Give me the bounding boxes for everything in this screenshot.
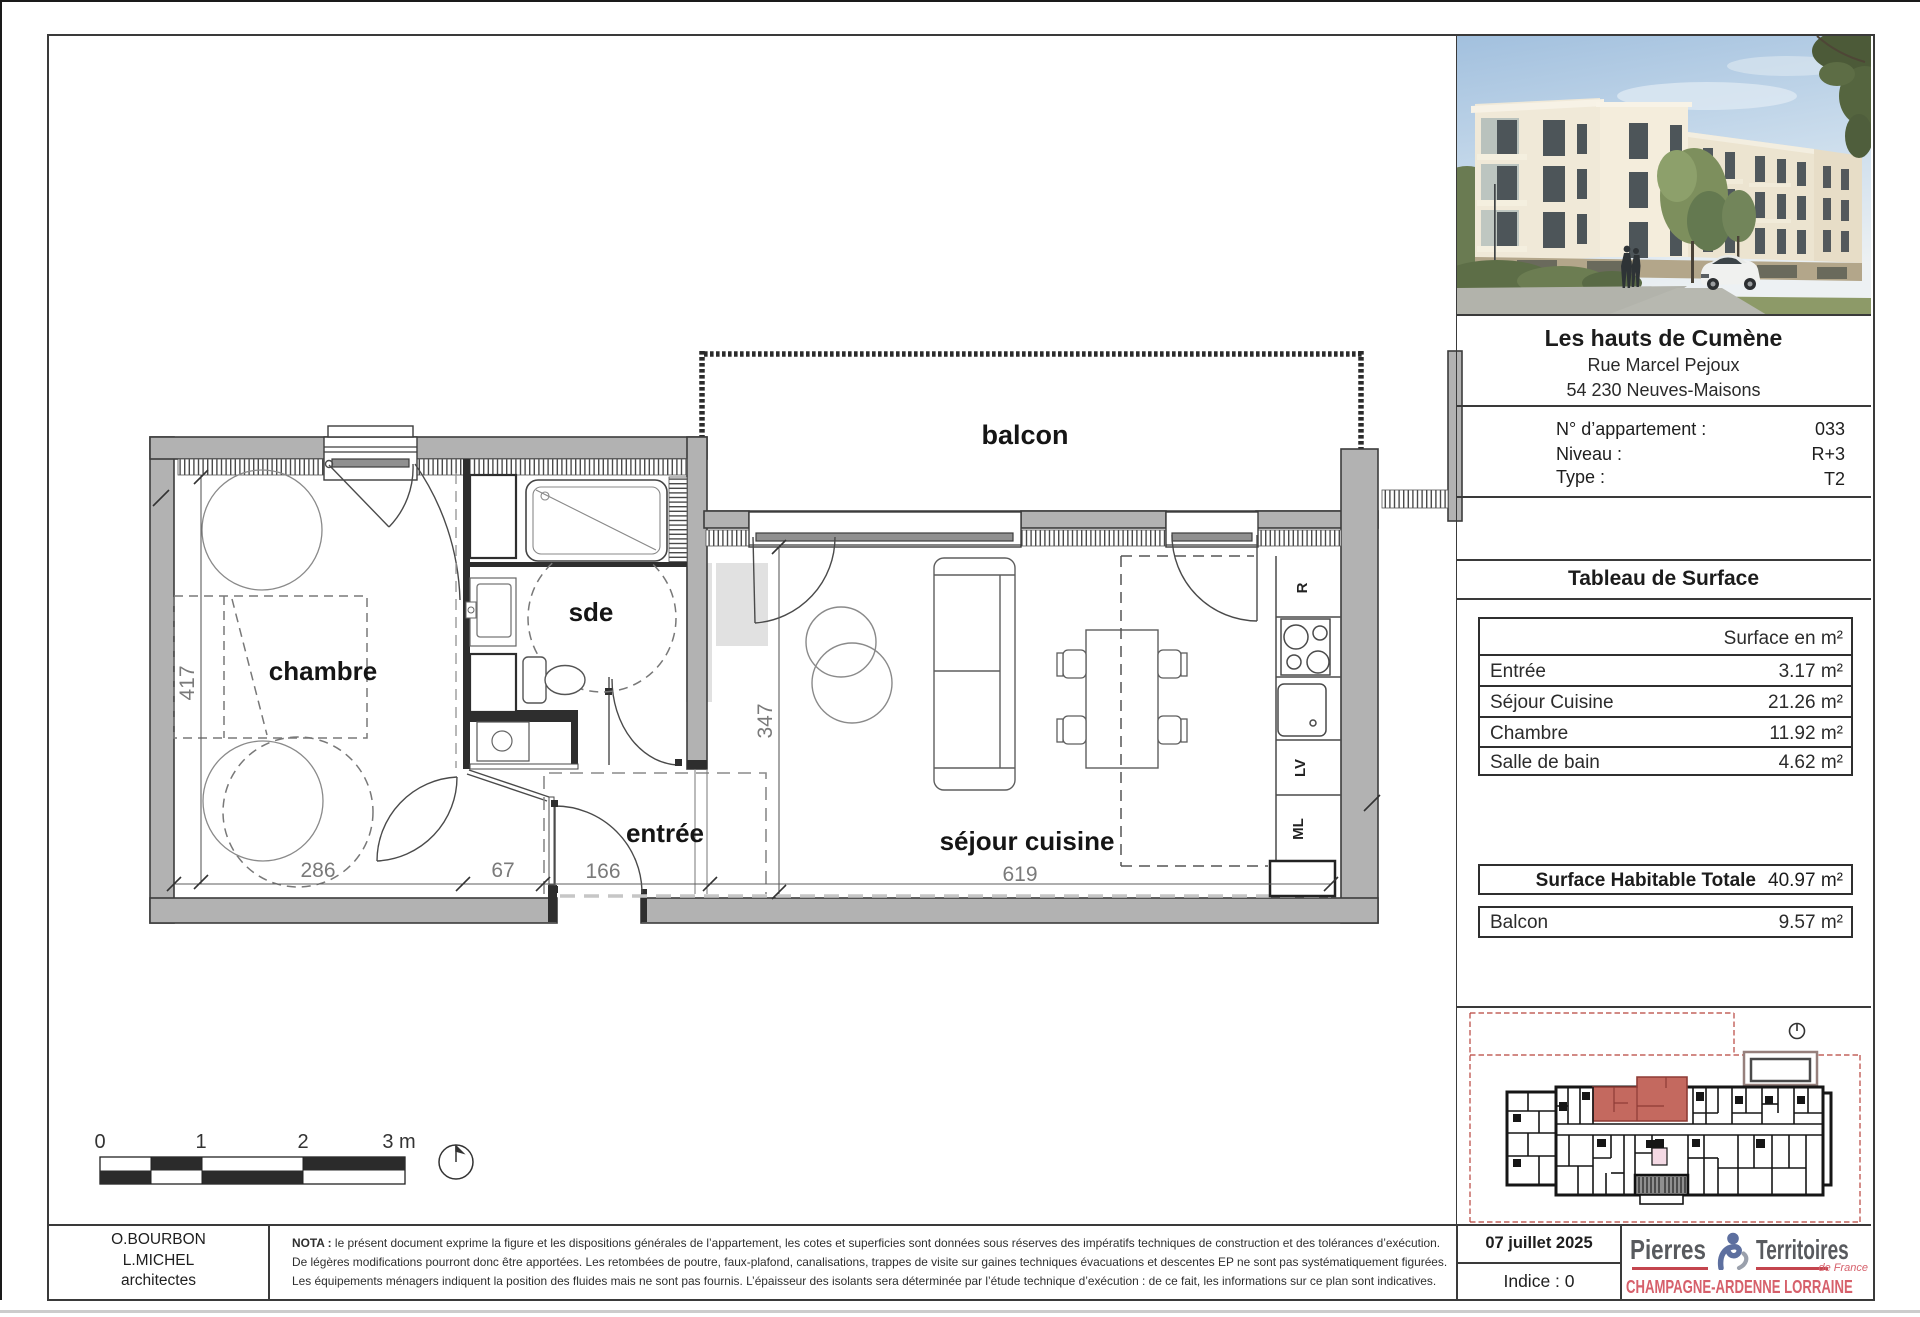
svg-text:sde: sde (569, 597, 614, 627)
svg-text:67: 67 (491, 859, 514, 882)
svg-text:2: 2 (297, 1131, 308, 1153)
svg-text:166: 166 (585, 860, 620, 883)
svg-text:1: 1 (195, 1131, 206, 1153)
svg-text:619: 619 (1002, 863, 1037, 886)
svg-text:286: 286 (300, 859, 335, 882)
svg-text:séjour cuisine: séjour cuisine (940, 826, 1115, 856)
svg-text:R: R (1294, 582, 1311, 593)
svg-text:347: 347 (754, 703, 777, 738)
svg-text:0: 0 (94, 1131, 105, 1153)
svg-text:ML: ML (1290, 818, 1307, 840)
svg-text:chambre: chambre (269, 656, 377, 686)
svg-text:3 m: 3 m (382, 1131, 415, 1153)
svg-text:entrée: entrée (626, 818, 704, 848)
svg-text:balcon: balcon (981, 420, 1068, 450)
svg-text:LV: LV (1292, 759, 1309, 777)
svg-text:417: 417 (176, 665, 199, 700)
